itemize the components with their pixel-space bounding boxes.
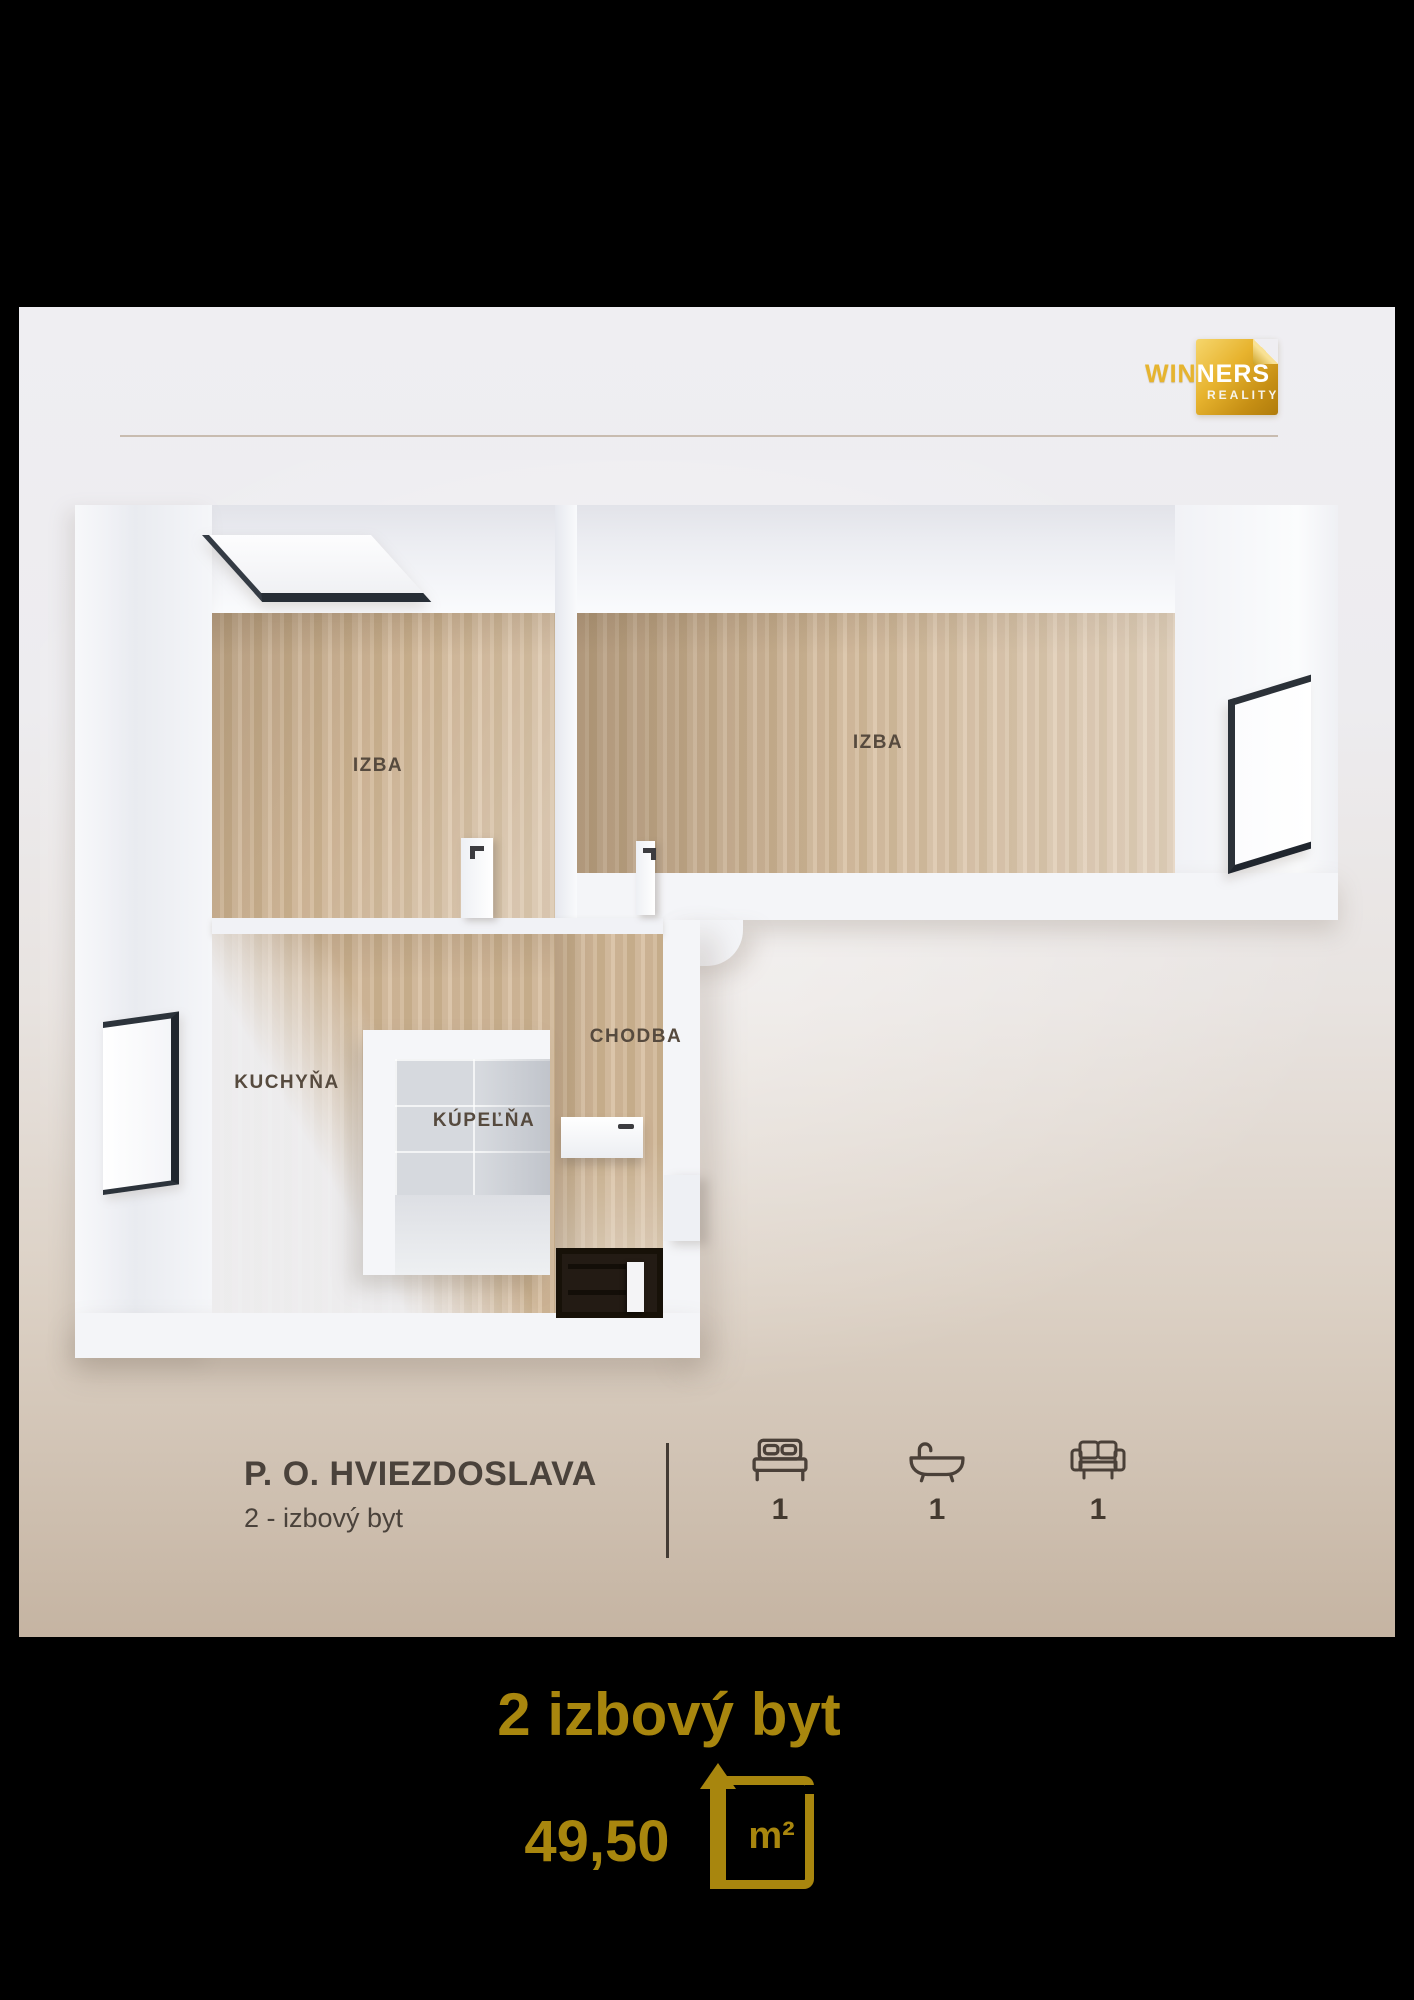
feature-count: 1 [877,1493,997,1527]
wall-right [1175,505,1338,920]
footer: 2 izbový byt 49,50 m² [0,1680,1338,1889]
logo-tagline: REALITY [1207,388,1307,402]
area-value: 49,50 [524,1808,669,1889]
header-divider-line [120,435,1278,437]
logo-brand-name: WINNERS [1145,360,1305,389]
bathroom-floor [395,1195,550,1275]
wall-corridor-right [663,920,700,1353]
door-izba-right [636,841,655,915]
bed-icon [751,1437,809,1483]
entrance-door-leaf [627,1262,644,1312]
footer-area-row: 49,50 m² [0,1785,1338,1889]
footer-title: 2 izbový byt [0,1680,1338,1749]
bathroom-walls [363,1030,550,1275]
bathroom-tiled-wall [395,1059,550,1195]
room-label-izba-right: IZBA [778,732,978,754]
floor-izba-right [577,613,1175,873]
feature-count: 1 [1038,1493,1158,1527]
logo-brand-suffix: NERS [1197,360,1270,388]
door-bathroom [561,1117,643,1158]
floor-izba-left [212,613,555,918]
listing-address: P. O. HVIEZDOSLAVA [244,1455,684,1494]
plan-glow [40,460,1370,1400]
listing-card: WINNERS REALITY [19,307,1395,1637]
entrance-door [556,1248,663,1318]
feature-bedrooms: 1 [720,1437,840,1553]
sofa-icon [1068,1437,1128,1483]
logo-brand-prefix: WIN [1145,360,1197,388]
door-handle-icon [470,846,484,851]
door-handle-icon [470,846,475,859]
door-handle-icon [643,848,656,853]
door-handle-icon [651,848,656,860]
feature-count: 1 [720,1493,840,1527]
floor-kitchen [212,934,563,1313]
door-panel-line [568,1290,626,1295]
wall-between-rooms [555,505,577,918]
feature-living-rooms: 1 [1038,1437,1158,1553]
arrow-up-shaft-icon [710,1789,726,1889]
room-label-kuchyna: KUCHYŇA [187,1072,387,1094]
area-unit-label: m² [732,1815,812,1858]
window-top-wall-icon [202,535,431,602]
details-divider [666,1443,669,1558]
poster-page: WINNERS REALITY [0,0,1414,2000]
wall-corner-round [663,920,743,966]
window-right-wall-icon [1228,675,1311,874]
floor-corridor [555,934,663,1313]
room-label-kupelna: KÚPEĽŇA [384,1110,584,1132]
bathtub-icon [908,1437,966,1483]
wall-room-right-bottom [577,873,1338,920]
listing-type: 2 - izbový byt [244,1503,684,1534]
wall-left [75,505,212,1358]
square-gap [805,1785,819,1794]
radiator [664,1175,700,1241]
door-handle-icon [618,1124,634,1129]
window-left-wall-icon [103,1011,179,1195]
door-panel-line [568,1264,626,1269]
feature-bathrooms: 1 [877,1437,997,1553]
wall-interior-band [212,918,663,934]
door-izba-left [461,838,493,918]
wall-top [75,505,1338,613]
area-unit-box: m² [710,1785,814,1889]
room-label-izba-left: IZBA [278,755,478,777]
arrow-up-head-icon [700,1763,736,1789]
room-label-chodba: CHODBA [536,1026,736,1048]
winners-reality-logo: WINNERS REALITY [1139,332,1309,427]
wall-bottom [75,1313,700,1358]
